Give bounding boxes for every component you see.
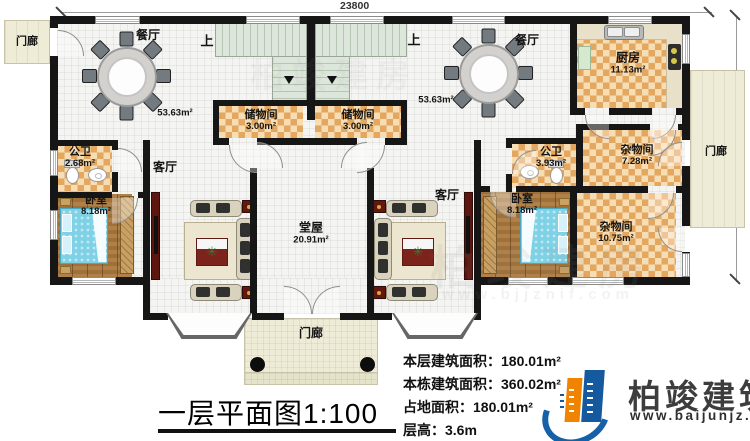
wall (257, 138, 357, 145)
room-label-bath-right: 公卫3.93m² (536, 146, 566, 170)
floor-plan-page: 23800 12300 (0, 0, 750, 441)
room-label-utility-lower: 杂物间10.75m² (598, 221, 633, 245)
sofa-cushion (392, 287, 406, 297)
chair-icon (120, 32, 134, 47)
room-label-storage-left: 储物间3.00m² (245, 109, 278, 133)
kitchen-cabinet (578, 46, 591, 70)
tv-icon (466, 216, 470, 254)
sofa-cushion (240, 259, 250, 273)
pillow (62, 214, 72, 232)
pillow (62, 236, 72, 254)
sofa-cushion (378, 223, 388, 237)
dim-tick (729, 9, 740, 20)
sofa-cushion (412, 203, 426, 213)
room-label-up-left: 上 (200, 35, 213, 50)
nightstand (60, 266, 71, 274)
room-label-living-left: 客厅 (153, 161, 177, 175)
corner-table (372, 200, 386, 213)
room-label-bath-left: 公卫2.68m² (65, 146, 95, 170)
nightstand (559, 266, 570, 274)
window (452, 16, 505, 24)
pillow (558, 236, 568, 254)
porch-column (250, 357, 265, 372)
stat-line: 本栋建筑面积：360.02m² (403, 373, 561, 396)
tv-icon (154, 216, 158, 254)
chair-icon (120, 106, 134, 121)
room-label-hall: 堂屋20.91m² (293, 222, 328, 247)
wall (609, 108, 652, 115)
wall (506, 174, 512, 192)
wall (340, 313, 392, 320)
window (508, 277, 548, 285)
stat-line: 层高：3.6m (403, 419, 561, 441)
logo-site: www.baijunjz.com (630, 408, 750, 423)
room-label-porch-right: 门廊 (705, 146, 727, 159)
wall (112, 172, 118, 192)
wall (506, 138, 583, 144)
sofa-cushion (240, 241, 250, 255)
dim-tick (729, 273, 740, 284)
room-label-kitchen: 厨房11.13m² (611, 52, 646, 77)
wall (367, 168, 374, 313)
wall (682, 166, 690, 226)
stair-arrow-down (327, 76, 337, 89)
window (682, 34, 690, 64)
kitchen-sink-basin (624, 27, 640, 37)
plant-icon: ✳ (196, 238, 228, 266)
stairs-left (215, 23, 307, 57)
wall (570, 186, 577, 285)
wall (252, 313, 284, 320)
logo-building-icon (581, 370, 605, 422)
wall (143, 140, 150, 320)
window (72, 277, 116, 285)
stove-burner (671, 48, 677, 54)
top-dimension-line (62, 12, 712, 13)
room-label-dining-right: 餐厅 (515, 34, 539, 48)
chair-icon (482, 103, 496, 118)
wall (676, 108, 690, 115)
room-label-dining-left: 餐厅 (136, 29, 160, 43)
window (572, 277, 624, 285)
wall (385, 138, 407, 145)
stats-block: 本层建筑面积：180.01m² 本栋建筑面积：360.02m² 占地面积：180… (403, 350, 561, 441)
nightstand (559, 198, 570, 206)
window (330, 16, 384, 24)
window (682, 253, 690, 277)
sofa-cushion (196, 203, 210, 213)
plant-icon: ✳ (402, 238, 434, 266)
logo-building-windows (587, 378, 593, 416)
wall (213, 100, 407, 106)
wall (676, 186, 682, 193)
wall (50, 16, 58, 28)
title-underline (158, 429, 396, 433)
sofa-cushion (216, 287, 230, 297)
table-center (107, 57, 147, 97)
room-label-porch-top-left: 门廊 (16, 36, 38, 49)
window (246, 16, 300, 24)
stat-line: 占地面积：180.01m² (403, 396, 561, 419)
room-label-utility-upper: 杂物间7.28m² (621, 144, 654, 168)
chair-icon (82, 69, 97, 83)
dining-table-left (83, 33, 167, 117)
window (608, 16, 652, 24)
wall (570, 16, 577, 115)
window (50, 210, 58, 240)
sink-icon (88, 168, 107, 182)
porch-bottom-step (244, 372, 378, 385)
stove-burner (671, 58, 677, 64)
window (50, 150, 58, 176)
room-label-porch-bottom: 门廊 (299, 327, 323, 341)
stat-line: 本层建筑面积：180.01m² (403, 350, 561, 373)
sofa-cushion (378, 259, 388, 273)
logo-building-windows (569, 384, 574, 416)
sofa-cushion (240, 223, 250, 237)
room-label-storage-right: 储物间3.00m² (342, 109, 375, 133)
chair-icon (156, 69, 171, 83)
area-label-dining-right: 53.63m² (418, 96, 453, 107)
plan-title: 一层平面图1:100 (158, 392, 378, 432)
wall (213, 138, 229, 145)
wall (250, 168, 257, 313)
room-label-bedroom-right: 卧室8.18m² (507, 193, 537, 217)
sofa-cushion (216, 203, 230, 213)
room-label-bedroom-left: 卧室8.18m² (81, 194, 111, 218)
wall (570, 186, 648, 193)
wall (58, 140, 118, 146)
sofa-cushion (196, 287, 210, 297)
wall (576, 124, 583, 192)
pillow (558, 214, 568, 232)
wall (678, 124, 682, 130)
logo-building-windows (560, 390, 564, 412)
wall (474, 140, 481, 320)
nightstand (60, 198, 71, 206)
chair-icon (518, 66, 533, 80)
window (95, 16, 140, 24)
wall (506, 138, 512, 148)
sofa-cushion (392, 203, 406, 213)
room-label-up-right: 上 (407, 34, 420, 49)
area-label-dining-left: 53.63m² (157, 109, 192, 120)
table-center (469, 54, 509, 94)
wall (570, 108, 585, 115)
wall (481, 186, 490, 192)
stairs-right (315, 23, 407, 57)
sofa-cushion (412, 287, 426, 297)
chair-icon (482, 29, 496, 44)
corner-table (372, 286, 386, 299)
stair-arrow-down (284, 76, 294, 89)
room-label-living-right: 客厅 (435, 189, 459, 203)
porch-column (360, 357, 375, 372)
kitchen-sink-basin (607, 27, 623, 37)
top-dimension-label: 23800 (340, 0, 369, 12)
sofa-cushion (378, 241, 388, 255)
chair-icon (444, 66, 459, 80)
